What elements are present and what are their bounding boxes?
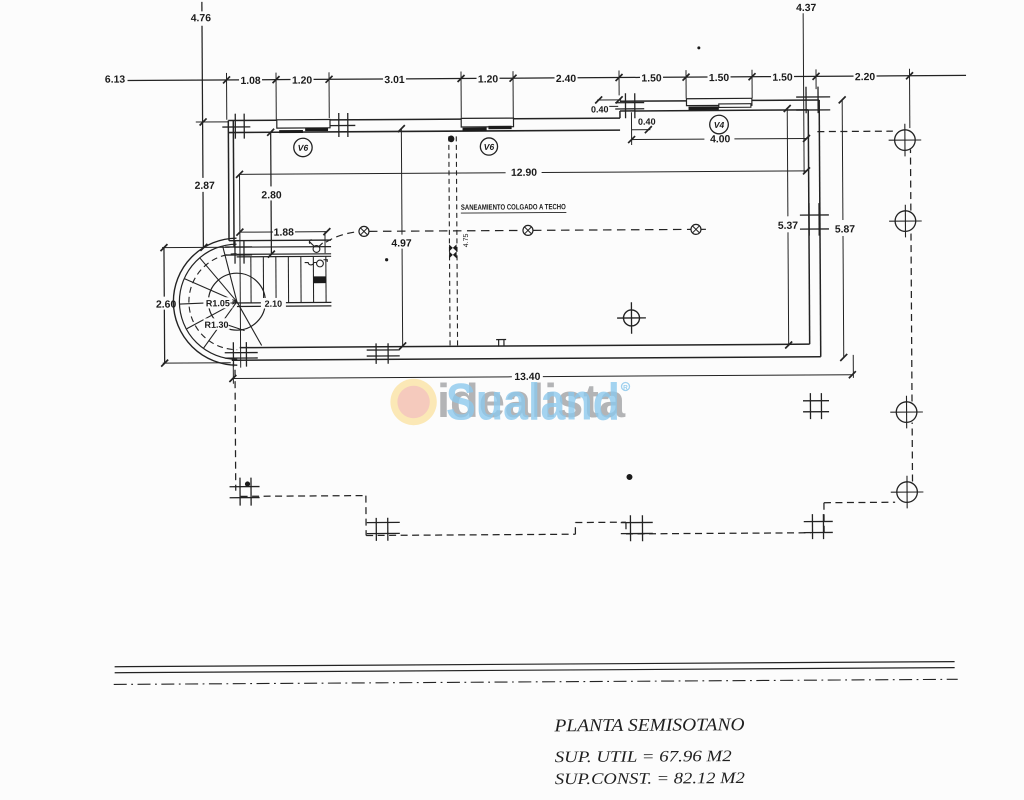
svg-text:4.00: 4.00 [710,134,731,145]
svg-text:4.97: 4.97 [391,238,412,249]
svg-text:0.40: 0.40 [638,117,656,127]
svg-text:R1.30: R1.30 [204,320,228,330]
svg-text:PLANTA SEMISOTANO: PLANTA SEMISOTANO [553,714,744,735]
svg-text:2.40: 2.40 [556,74,577,85]
svg-text:1.50: 1.50 [709,73,730,84]
svg-text:12.90: 12.90 [511,168,537,179]
svg-text:6.13: 6.13 [105,75,126,86]
svg-text:4.37: 4.37 [796,3,817,14]
svg-text:R: R [623,384,628,391]
svg-text:2.10: 2.10 [265,299,283,309]
svg-text:SANEAMIENTO COLGADO A TECHO: SANEAMIENTO COLGADO A TECHO [461,202,566,212]
svg-text:1.20: 1.20 [478,74,499,85]
svg-text:4.75: 4.75 [463,234,470,248]
svg-text:Sualand: Sualand [446,374,620,432]
svg-text:1.20: 1.20 [292,76,313,87]
svg-text:5.87: 5.87 [835,224,856,235]
svg-text:SUP. UTIL = 67.96 M2: SUP. UTIL = 67.96 M2 [555,748,732,766]
svg-text:V6: V6 [484,142,495,152]
svg-text:0.40: 0.40 [591,104,609,114]
svg-text:2.87: 2.87 [195,181,216,192]
svg-text:SUP.CONST. = 82.12 M2: SUP.CONST. = 82.12 M2 [555,770,745,788]
svg-text:4.76: 4.76 [191,13,212,24]
svg-text:2.20: 2.20 [855,72,876,83]
svg-text:3.01: 3.01 [384,75,405,86]
svg-text:V6: V6 [298,143,309,153]
svg-text:2.80: 2.80 [261,190,282,201]
svg-text:5.37: 5.37 [778,221,799,232]
svg-text:V4: V4 [714,120,725,130]
svg-text:1.88: 1.88 [274,228,295,239]
svg-text:R1.05: R1.05 [206,298,230,308]
svg-text:1.50: 1.50 [772,73,793,84]
svg-text:1.50: 1.50 [641,73,662,84]
svg-text:1.08: 1.08 [240,76,261,87]
